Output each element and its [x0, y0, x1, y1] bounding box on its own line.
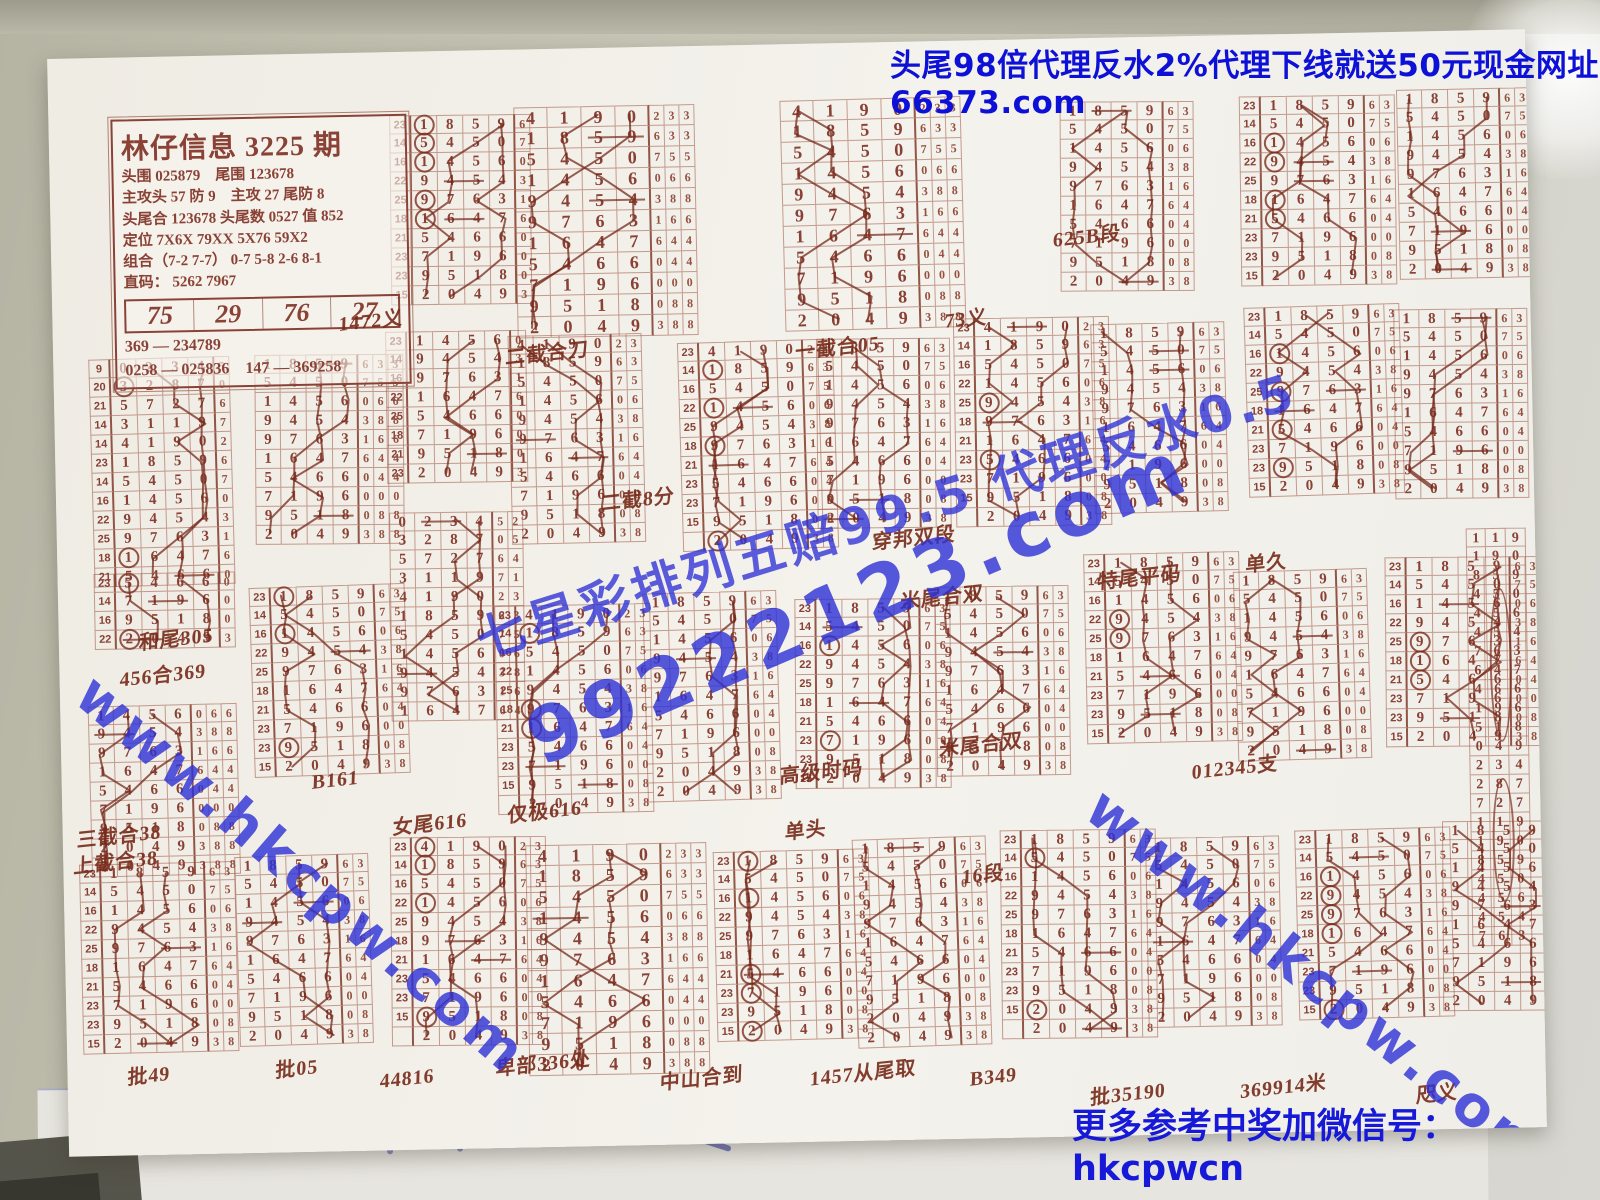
footer-contact-text: 更多参考中奖加微信号：hkcpwcn: [1072, 1098, 1600, 1189]
handwritten-annotation: 高级时码: [779, 751, 863, 789]
info-box: 林仔信息 3225 期 头围 025879 尾围 123678 主攻头 57 防…: [110, 114, 411, 390]
info-line-6: 直码： 5262 7967: [123, 268, 399, 295]
trail-cell: 6: [1546, 820, 1547, 839]
handwritten-annotation: 和尾305: [139, 618, 215, 655]
handwritten-annotation: 单头: [784, 811, 827, 845]
handwritten-annotation: 一截合05: [795, 326, 880, 364]
trail-cell: 3: [1546, 877, 1547, 896]
handwritten-annotation: 批49: [127, 1057, 171, 1091]
paper-sheet: 林仔信息 3225 期 头围 025879 尾围 123678 主攻头 57 防…: [47, 29, 1547, 1156]
photo-background: 5 5 5 5 林仔信息 3225 期 头围 025879 尾围 123678 …: [0, 0, 1600, 1200]
info-number-cell: 75: [126, 300, 195, 331]
handwritten-annotation: 批05: [275, 1050, 319, 1084]
ad-banner-text: 头尾98倍代理反水2%代理下线就送50元现金网址66373.com: [890, 40, 1600, 121]
handwritten-annotation: 女尾616: [392, 803, 468, 840]
info-footer-line-2: 0258 — 025836 147 — 369258: [125, 354, 401, 384]
handwritten-annotation: 特尾平码: [1097, 556, 1181, 594]
handwritten-annotation: 44816: [379, 1065, 434, 1094]
handwritten-annotation: 012345支: [1191, 746, 1278, 785]
table-surface-top: [0, 0, 1600, 34]
handwritten-annotation: B161: [311, 767, 359, 795]
handwritten-annotation: 625B段: [1053, 216, 1122, 253]
handwritten-annotation: 二截8分: [601, 479, 676, 516]
handwritten-annotation: 中山合到: [659, 1057, 743, 1095]
handwritten-annotation: 16段: [961, 856, 1005, 890]
handwritten-annotation: 单久: [1245, 544, 1288, 578]
info-box-title: 林仔信息 3225 期: [121, 122, 398, 168]
handwritten-annotation: B349: [970, 1064, 1018, 1092]
handwritten-annotation: 二截合刀: [505, 332, 589, 370]
trail-cell: 0: [1546, 858, 1547, 877]
handwritten-annotation: 73义: [944, 300, 988, 334]
info-number-cell: 29: [194, 298, 263, 329]
handwritten-annotation: 1457从尾取: [809, 1051, 916, 1092]
info-number-cell: 76: [262, 297, 331, 328]
handwritten-annotation: 米尾合双: [939, 724, 1023, 762]
trail-cell: 7: [1546, 839, 1547, 858]
handwritten-annotation: 仅极616: [507, 791, 583, 828]
